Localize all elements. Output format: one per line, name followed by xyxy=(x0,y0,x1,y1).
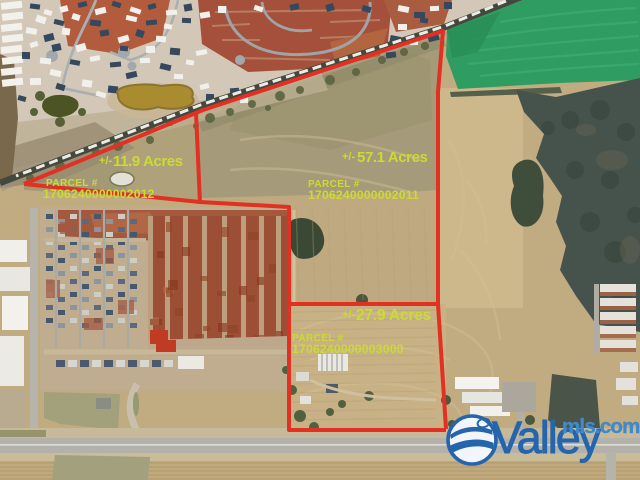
svg-text:+/-: +/- xyxy=(342,309,355,321)
svg-text:+/-: +/- xyxy=(342,151,355,163)
svg-text:27.9 Acres: 27.9 Acres xyxy=(356,307,431,324)
svg-text:11.9 Acres: 11.9 Acres xyxy=(113,153,183,170)
svg-text:57.1 Acres: 57.1 Acres xyxy=(357,149,428,166)
svg-text:1706240000003000: 1706240000003000 xyxy=(292,342,404,356)
svg-text:mls.com: mls.com xyxy=(562,415,640,438)
svg-text:1706240000002012: 1706240000002012 xyxy=(43,187,155,201)
svg-text:1706240000002011: 1706240000002011 xyxy=(308,188,419,202)
svg-text:+/-: +/- xyxy=(99,155,112,167)
